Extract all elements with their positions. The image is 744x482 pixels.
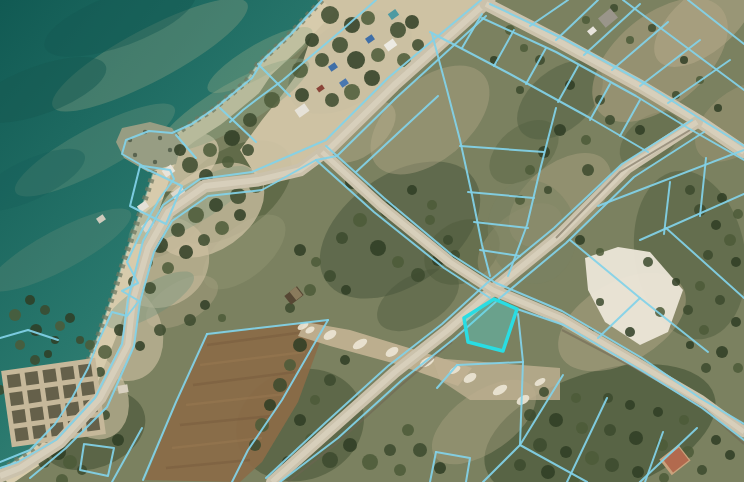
tree	[200, 300, 210, 310]
tree	[686, 341, 694, 349]
tree	[604, 424, 616, 436]
tree	[273, 378, 287, 392]
tree	[625, 400, 635, 410]
tree	[680, 56, 688, 64]
tree	[524, 409, 536, 421]
breakwater-rock	[133, 153, 137, 157]
tree	[243, 113, 257, 127]
tree	[711, 435, 721, 445]
tree	[544, 186, 552, 194]
tree	[715, 295, 725, 305]
tree	[697, 465, 707, 475]
tree	[576, 422, 588, 434]
tree	[44, 350, 52, 358]
tree	[392, 256, 404, 268]
tree	[443, 235, 453, 245]
tree	[554, 124, 566, 136]
tree	[112, 434, 124, 446]
tree	[310, 395, 320, 405]
tree	[390, 22, 406, 38]
tree	[434, 462, 446, 474]
tree	[683, 305, 693, 315]
tree	[347, 51, 365, 69]
tree	[703, 250, 713, 260]
tree	[581, 135, 591, 145]
tree	[394, 464, 406, 476]
tree	[520, 44, 528, 52]
tree	[332, 37, 348, 53]
tree	[405, 15, 419, 29]
breakwater-rock	[153, 160, 157, 164]
tree	[596, 248, 604, 256]
tree	[305, 33, 319, 47]
tree	[541, 465, 555, 479]
tree	[525, 165, 535, 175]
tree	[63, 455, 77, 469]
tree	[425, 215, 435, 225]
tree	[285, 303, 295, 313]
tree	[234, 209, 246, 221]
breakwater-rock	[168, 148, 172, 152]
tree	[364, 70, 380, 86]
tree	[733, 363, 743, 373]
tree	[582, 16, 590, 24]
tree	[514, 459, 526, 471]
tree	[209, 198, 223, 212]
tree	[384, 444, 396, 456]
tree	[685, 185, 695, 195]
tree	[294, 414, 306, 426]
tree	[284, 359, 296, 371]
tree	[304, 284, 316, 296]
tree	[371, 48, 385, 62]
tree	[731, 257, 741, 267]
tree	[344, 84, 360, 100]
tree	[25, 295, 35, 305]
tree	[198, 234, 210, 246]
tree	[629, 431, 643, 445]
tree	[154, 324, 166, 336]
tree	[575, 235, 585, 245]
tree	[184, 314, 196, 326]
tree	[215, 221, 229, 235]
tree	[539, 387, 549, 397]
tree	[635, 125, 645, 135]
tree	[76, 336, 84, 344]
tree	[325, 93, 339, 107]
tree	[171, 223, 185, 237]
tree	[711, 220, 721, 230]
map-viewport[interactable]	[0, 0, 744, 482]
tree	[353, 213, 367, 227]
tree	[340, 355, 350, 365]
tree	[533, 438, 547, 452]
tree	[725, 450, 735, 460]
tree	[293, 338, 307, 352]
tree	[224, 130, 240, 146]
tree	[625, 327, 635, 337]
tree	[9, 309, 21, 321]
breakwater-rock	[158, 136, 162, 140]
tree	[714, 104, 722, 112]
tree	[264, 399, 276, 411]
tree	[413, 443, 427, 457]
tree	[321, 6, 339, 24]
tree	[731, 317, 741, 327]
tree	[596, 298, 604, 306]
tree	[679, 415, 689, 425]
tree	[343, 438, 357, 452]
tree	[315, 53, 329, 67]
tree	[402, 424, 414, 436]
tree	[582, 164, 594, 176]
tree	[585, 451, 599, 465]
tree	[653, 407, 663, 417]
tree	[695, 281, 705, 291]
tree	[218, 314, 226, 322]
tree	[230, 188, 246, 204]
tree	[222, 156, 234, 168]
tree	[643, 257, 653, 267]
tree	[341, 285, 351, 295]
tree	[370, 240, 386, 256]
tree	[516, 86, 524, 94]
tree	[324, 270, 336, 282]
tree	[733, 209, 743, 219]
tree	[648, 24, 656, 32]
tree	[701, 363, 711, 373]
tree	[242, 144, 254, 156]
tree	[549, 413, 563, 427]
tree	[626, 36, 634, 44]
tree	[85, 340, 95, 350]
tree	[699, 325, 709, 335]
tree	[179, 245, 193, 259]
tree	[571, 393, 581, 403]
tree	[336, 232, 348, 244]
tree	[311, 257, 321, 267]
tree	[295, 88, 309, 102]
tree	[605, 115, 615, 125]
map-canvas[interactable]	[0, 0, 744, 482]
tree	[716, 346, 728, 358]
tree	[632, 466, 644, 478]
tree	[55, 321, 65, 331]
tree	[605, 458, 619, 472]
tree	[362, 454, 378, 470]
tree	[672, 278, 680, 286]
tree	[65, 313, 75, 323]
tree	[15, 340, 25, 350]
tree	[135, 341, 145, 351]
tree	[294, 244, 306, 256]
tree	[407, 185, 417, 195]
tree	[264, 92, 280, 108]
tree	[560, 446, 572, 458]
tree	[361, 11, 375, 25]
tree	[98, 345, 112, 359]
tree	[427, 200, 437, 210]
tree	[724, 234, 736, 246]
tree	[40, 305, 50, 315]
building	[117, 384, 128, 394]
tree	[324, 374, 336, 386]
tree	[411, 268, 425, 282]
tree	[182, 157, 198, 173]
tree	[203, 143, 217, 157]
tree	[162, 262, 174, 274]
tree	[30, 355, 40, 365]
